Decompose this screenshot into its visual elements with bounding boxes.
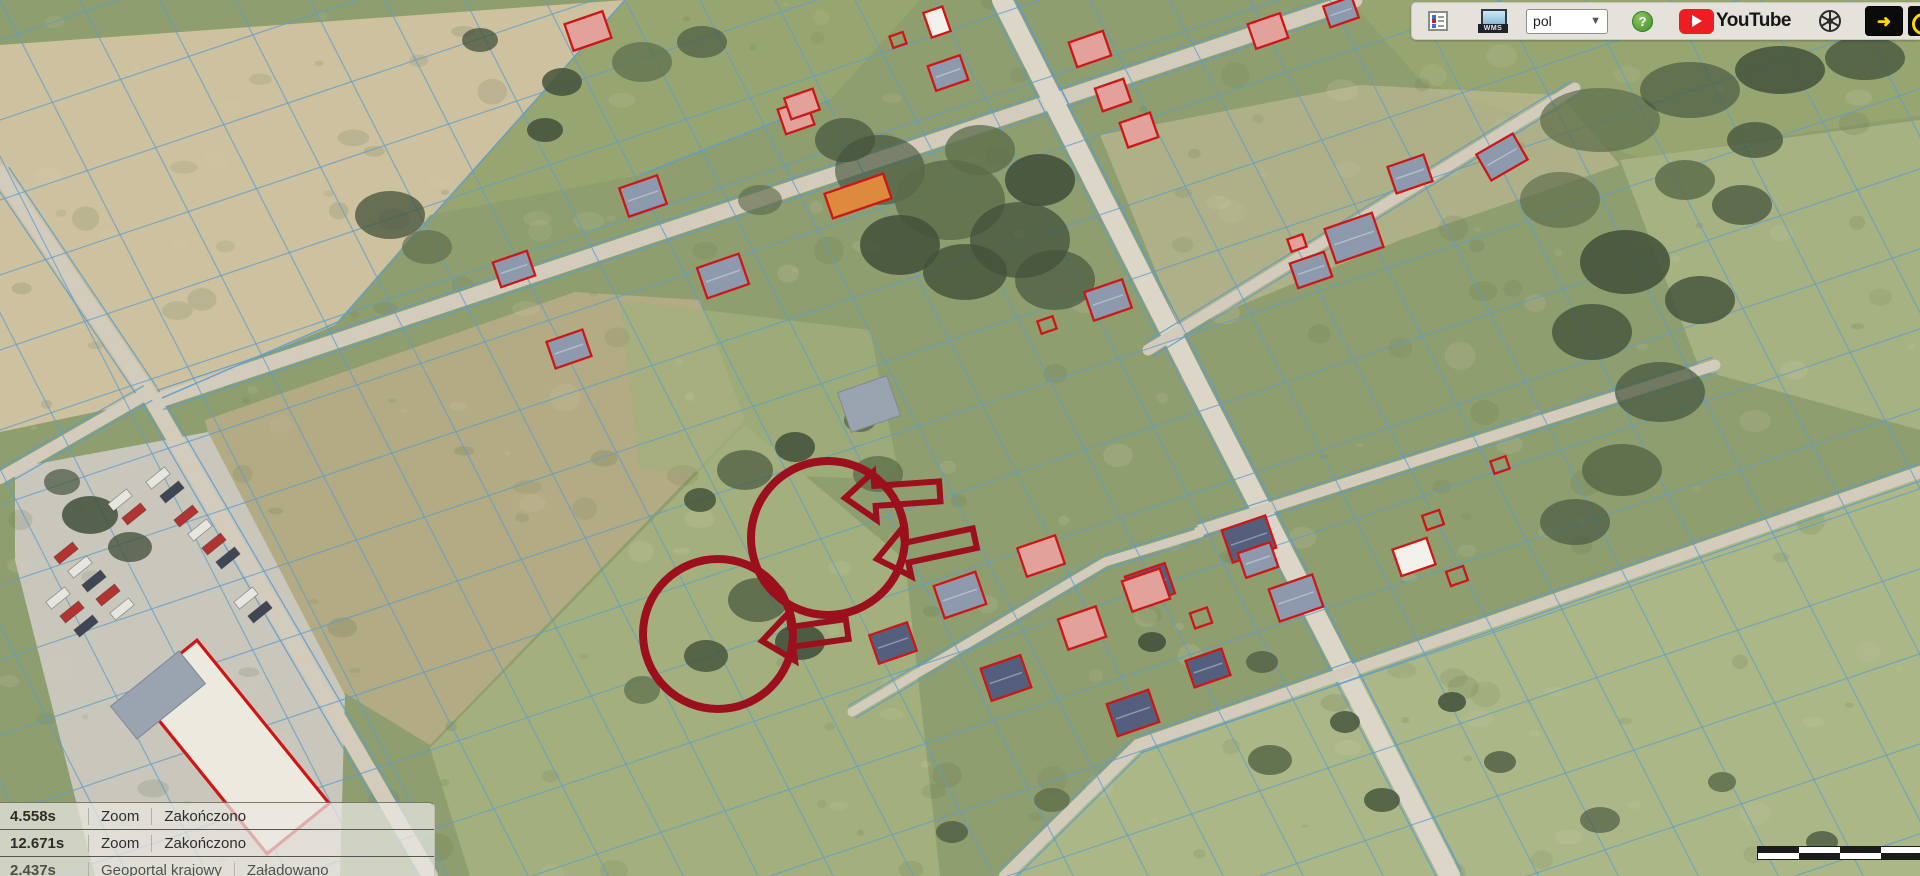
- status-state: Zakończono: [151, 808, 258, 825]
- status-row: 12.671sZoomZakończono: [0, 830, 434, 857]
- scale-cell: [1840, 853, 1881, 859]
- youtube-link[interactable]: YouTube: [1679, 9, 1791, 34]
- status-time: 12.671s: [10, 835, 88, 852]
- top-toolbar: WMS pol ▼ ? YouTube ➜: [1411, 2, 1920, 40]
- map-scale-bar: [1757, 846, 1920, 860]
- status-state: Załadowano: [234, 862, 341, 876]
- status-action: Zoom: [88, 835, 151, 852]
- legend-button[interactable]: [1428, 11, 1448, 31]
- status-action: Geoportal krajowy: [88, 862, 234, 876]
- contrast-button[interactable]: ➜: [1865, 6, 1903, 36]
- language-select[interactable]: pol ▼: [1526, 9, 1608, 34]
- language-value: pol: [1533, 13, 1552, 29]
- map-canvas[interactable]: [0, 0, 1920, 876]
- status-log-panel: 4.558sZoomZakończono12.671sZoomZakończon…: [0, 802, 435, 876]
- help-button[interactable]: ?: [1632, 11, 1653, 32]
- wms-label: WMS: [1478, 24, 1508, 33]
- status-row: 2.437sGeoportal krajowyZaładowano: [0, 857, 434, 876]
- status-time: 4.558s: [10, 808, 88, 825]
- chevron-down-icon: ▼: [1590, 15, 1601, 27]
- status-row: 4.558sZoomZakończono: [0, 803, 434, 830]
- scale-cell: [1799, 853, 1840, 859]
- settings-wheel-button[interactable]: [1817, 8, 1843, 34]
- scale-cell: [1758, 853, 1799, 859]
- youtube-label: YouTube: [1716, 10, 1791, 32]
- youtube-play-icon: [1679, 9, 1714, 34]
- geoportal-app: WMS pol ▼ ? YouTube ➜ 4: [0, 0, 1920, 876]
- wms-button[interactable]: WMS: [1478, 9, 1508, 33]
- status-action: Zoom: [88, 808, 151, 825]
- legend-icon: [1428, 11, 1448, 31]
- wheel-icon: [1817, 8, 1843, 34]
- contrast-button-partial[interactable]: [1908, 6, 1920, 36]
- yellow-arrow-icon: ➜: [1877, 12, 1891, 31]
- scale-cell: [1881, 853, 1920, 859]
- status-state: Zakończono: [151, 835, 258, 852]
- status-time: 2.437s: [10, 862, 88, 876]
